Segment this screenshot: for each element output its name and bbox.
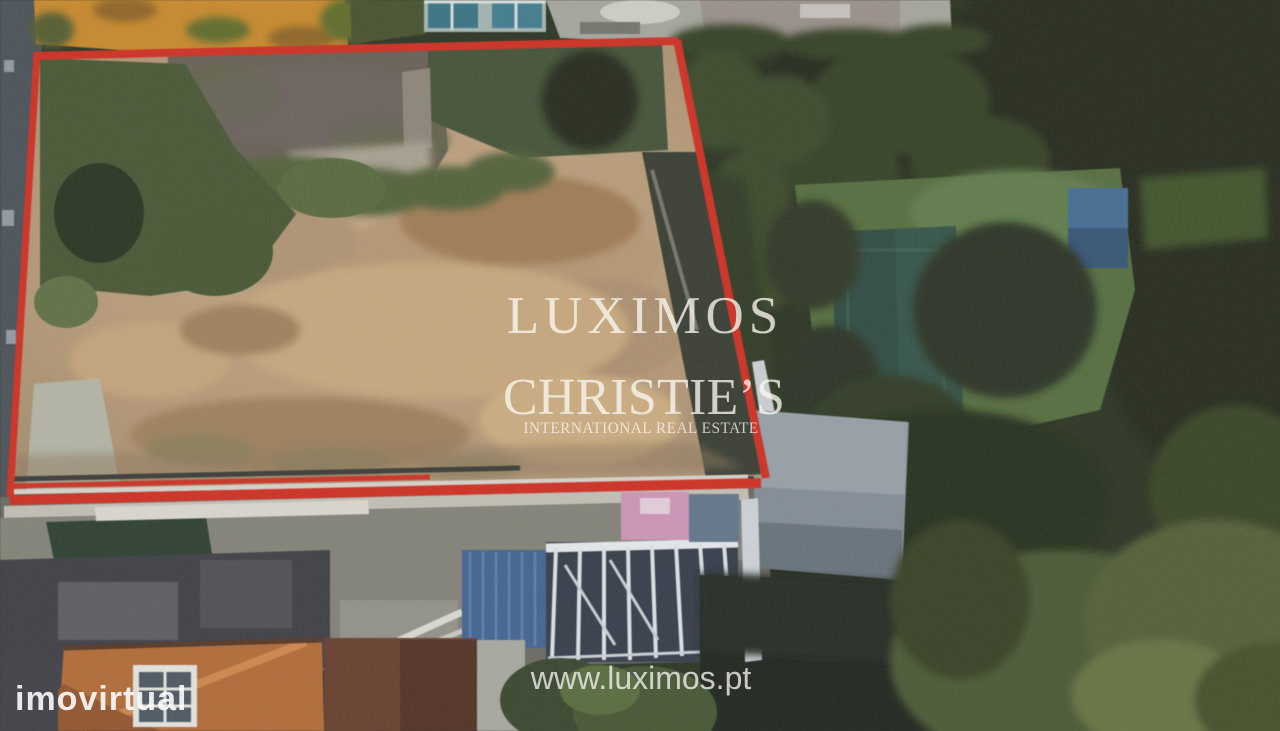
svg-text:imovirtual: imovirtual [15, 680, 187, 718]
svg-text:www.luximos.pt: www.luximos.pt [530, 660, 752, 696]
svg-text:CHRISTIE’S: CHRISTIE’S [503, 369, 785, 426]
svg-text:INTERNATIONAL REAL ESTATE: INTERNATIONAL REAL ESTATE [523, 420, 758, 437]
svg-text:LUXIMOS: LUXIMOS [507, 287, 783, 345]
